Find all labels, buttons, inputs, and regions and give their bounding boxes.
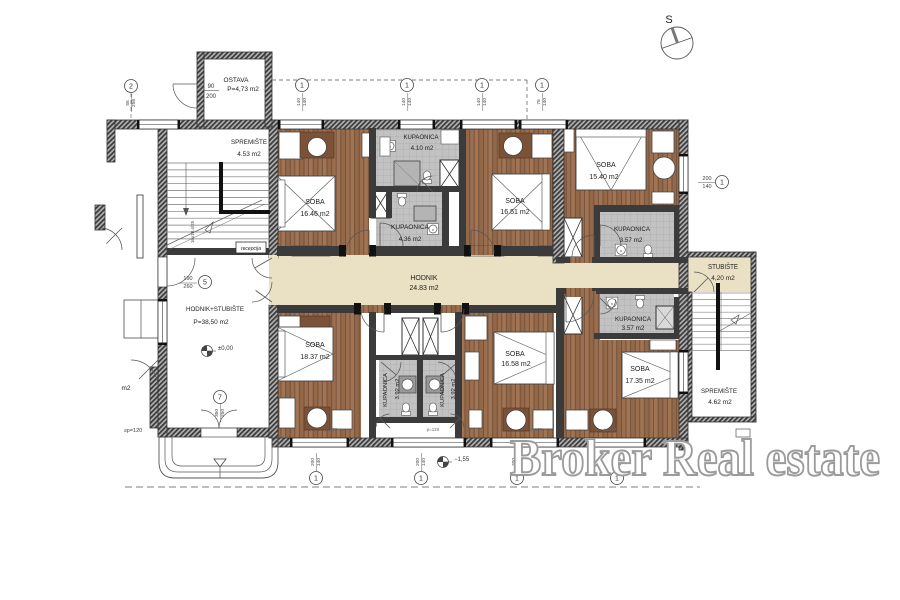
svg-text:2: 2 <box>129 84 133 91</box>
svg-text:1: 1 <box>720 180 724 187</box>
svg-text:140: 140 <box>316 458 322 466</box>
svg-text:KUPAONICA: KUPAONICA <box>614 226 651 233</box>
svg-text:STUBIŠTE: STUBIŠTE <box>708 262 738 271</box>
svg-text:1: 1 <box>419 476 423 483</box>
svg-text:17.35 m2: 17.35 m2 <box>625 378 654 385</box>
svg-text:140: 140 <box>482 98 488 106</box>
svg-text:≥p=120: ≥p=120 <box>124 428 142 434</box>
svg-text:m2: m2 <box>121 385 130 392</box>
svg-text:140: 140 <box>296 98 302 106</box>
svg-text:±0,00: ±0,00 <box>218 346 234 352</box>
svg-text:5: 5 <box>203 280 207 287</box>
svg-text:1: 1 <box>480 83 484 90</box>
svg-text:55: 55 <box>125 100 131 106</box>
svg-text:140: 140 <box>407 98 413 106</box>
svg-text:18.37 m2: 18.37 m2 <box>300 354 329 361</box>
svg-text:3.57 m2: 3.57 m2 <box>622 325 645 332</box>
svg-text:140: 140 <box>421 458 427 466</box>
svg-text:200: 200 <box>415 458 421 466</box>
svg-text:190: 190 <box>183 276 192 282</box>
svg-text:SOBA: SOBA <box>505 351 525 358</box>
svg-text:KUPAONICA: KUPAONICA <box>440 373 446 407</box>
svg-text:200: 200 <box>206 94 217 100</box>
svg-text:256: 256 <box>131 99 137 107</box>
svg-text:KUPAONICA: KUPAONICA <box>404 134 440 141</box>
svg-text:4,20 m2: 4,20 m2 <box>711 275 735 282</box>
svg-text:16.51 m2: 16.51 m2 <box>500 209 529 216</box>
svg-text:4.53 m2: 4.53 m2 <box>237 151 261 158</box>
svg-text:16.46 m2: 16.46 m2 <box>300 211 329 218</box>
svg-text:SOBA: SOBA <box>305 342 325 349</box>
svg-text:p=120: p=120 <box>325 427 338 432</box>
svg-text:140: 140 <box>542 98 548 106</box>
svg-text:SPREMIŠTE: SPREMIŠTE <box>701 386 738 395</box>
svg-text:7: 7 <box>218 395 222 402</box>
svg-text:3.92 m2: 3.92 m2 <box>395 379 401 400</box>
svg-text:Broker Real estate: Broker Real estate <box>510 430 880 487</box>
svg-text:200: 200 <box>310 458 316 466</box>
svg-text:−1,55: −1,55 <box>454 457 470 463</box>
svg-text:p=120: p=120 <box>427 427 440 432</box>
svg-text:P=4,73 m2: P=4,73 m2 <box>227 86 259 93</box>
svg-text:140: 140 <box>401 98 407 106</box>
svg-text:SPREMIŠTE: SPREMIŠTE <box>231 137 268 146</box>
svg-text:SOBA: SOBA <box>596 162 616 169</box>
svg-text:90: 90 <box>208 84 215 90</box>
svg-text:S: S <box>665 14 672 26</box>
svg-text:250: 250 <box>220 409 226 417</box>
svg-text:350: 350 <box>214 409 220 417</box>
svg-text:140: 140 <box>702 184 711 190</box>
svg-text:HODNIK: HODNIK <box>410 275 438 282</box>
svg-text:KUPAONICA: KUPAONICA <box>615 316 652 323</box>
svg-text:OSTAVA: OSTAVA <box>224 77 250 84</box>
svg-text:4.62 m2: 4.62 m2 <box>708 399 732 406</box>
svg-text:3.57 m2: 3.57 m2 <box>620 237 643 244</box>
svg-text:1: 1 <box>300 83 304 90</box>
svg-text:16x18,4/25: 16x18,4/25 <box>190 220 195 243</box>
svg-text:SOBA: SOBA <box>630 366 650 373</box>
svg-text:200: 200 <box>702 176 711 182</box>
svg-text:75: 75 <box>536 99 542 105</box>
svg-text:KUPAONICA: KUPAONICA <box>383 373 389 407</box>
svg-text:1: 1 <box>405 83 409 90</box>
svg-text:24.83 m2: 24.83 m2 <box>409 285 438 292</box>
svg-text:KUPAONICA: KUPAONICA <box>391 224 430 231</box>
svg-text:140: 140 <box>476 98 482 106</box>
svg-text:16.58 m2: 16.58 m2 <box>501 361 530 368</box>
svg-text:1: 1 <box>314 476 318 483</box>
svg-text:3.92 m2: 3.92 m2 <box>451 379 457 400</box>
svg-text:4.36 m2: 4.36 m2 <box>399 236 422 243</box>
svg-text:SOBA: SOBA <box>505 198 525 205</box>
svg-text:P=38,50 m2: P=38,50 m2 <box>193 319 229 326</box>
svg-text:4.10 m2: 4.10 m2 <box>411 145 434 152</box>
svg-text:1: 1 <box>540 83 544 90</box>
svg-text:140: 140 <box>302 98 308 106</box>
svg-text:HODNIK+STUBIŠTE: HODNIK+STUBIŠTE <box>186 304 245 313</box>
svg-text:15.40 m2: 15.40 m2 <box>589 174 618 181</box>
svg-text:260: 260 <box>183 284 192 290</box>
svg-text:SOBA: SOBA <box>305 199 325 206</box>
svg-text:recepcija: recepcija <box>241 246 261 252</box>
